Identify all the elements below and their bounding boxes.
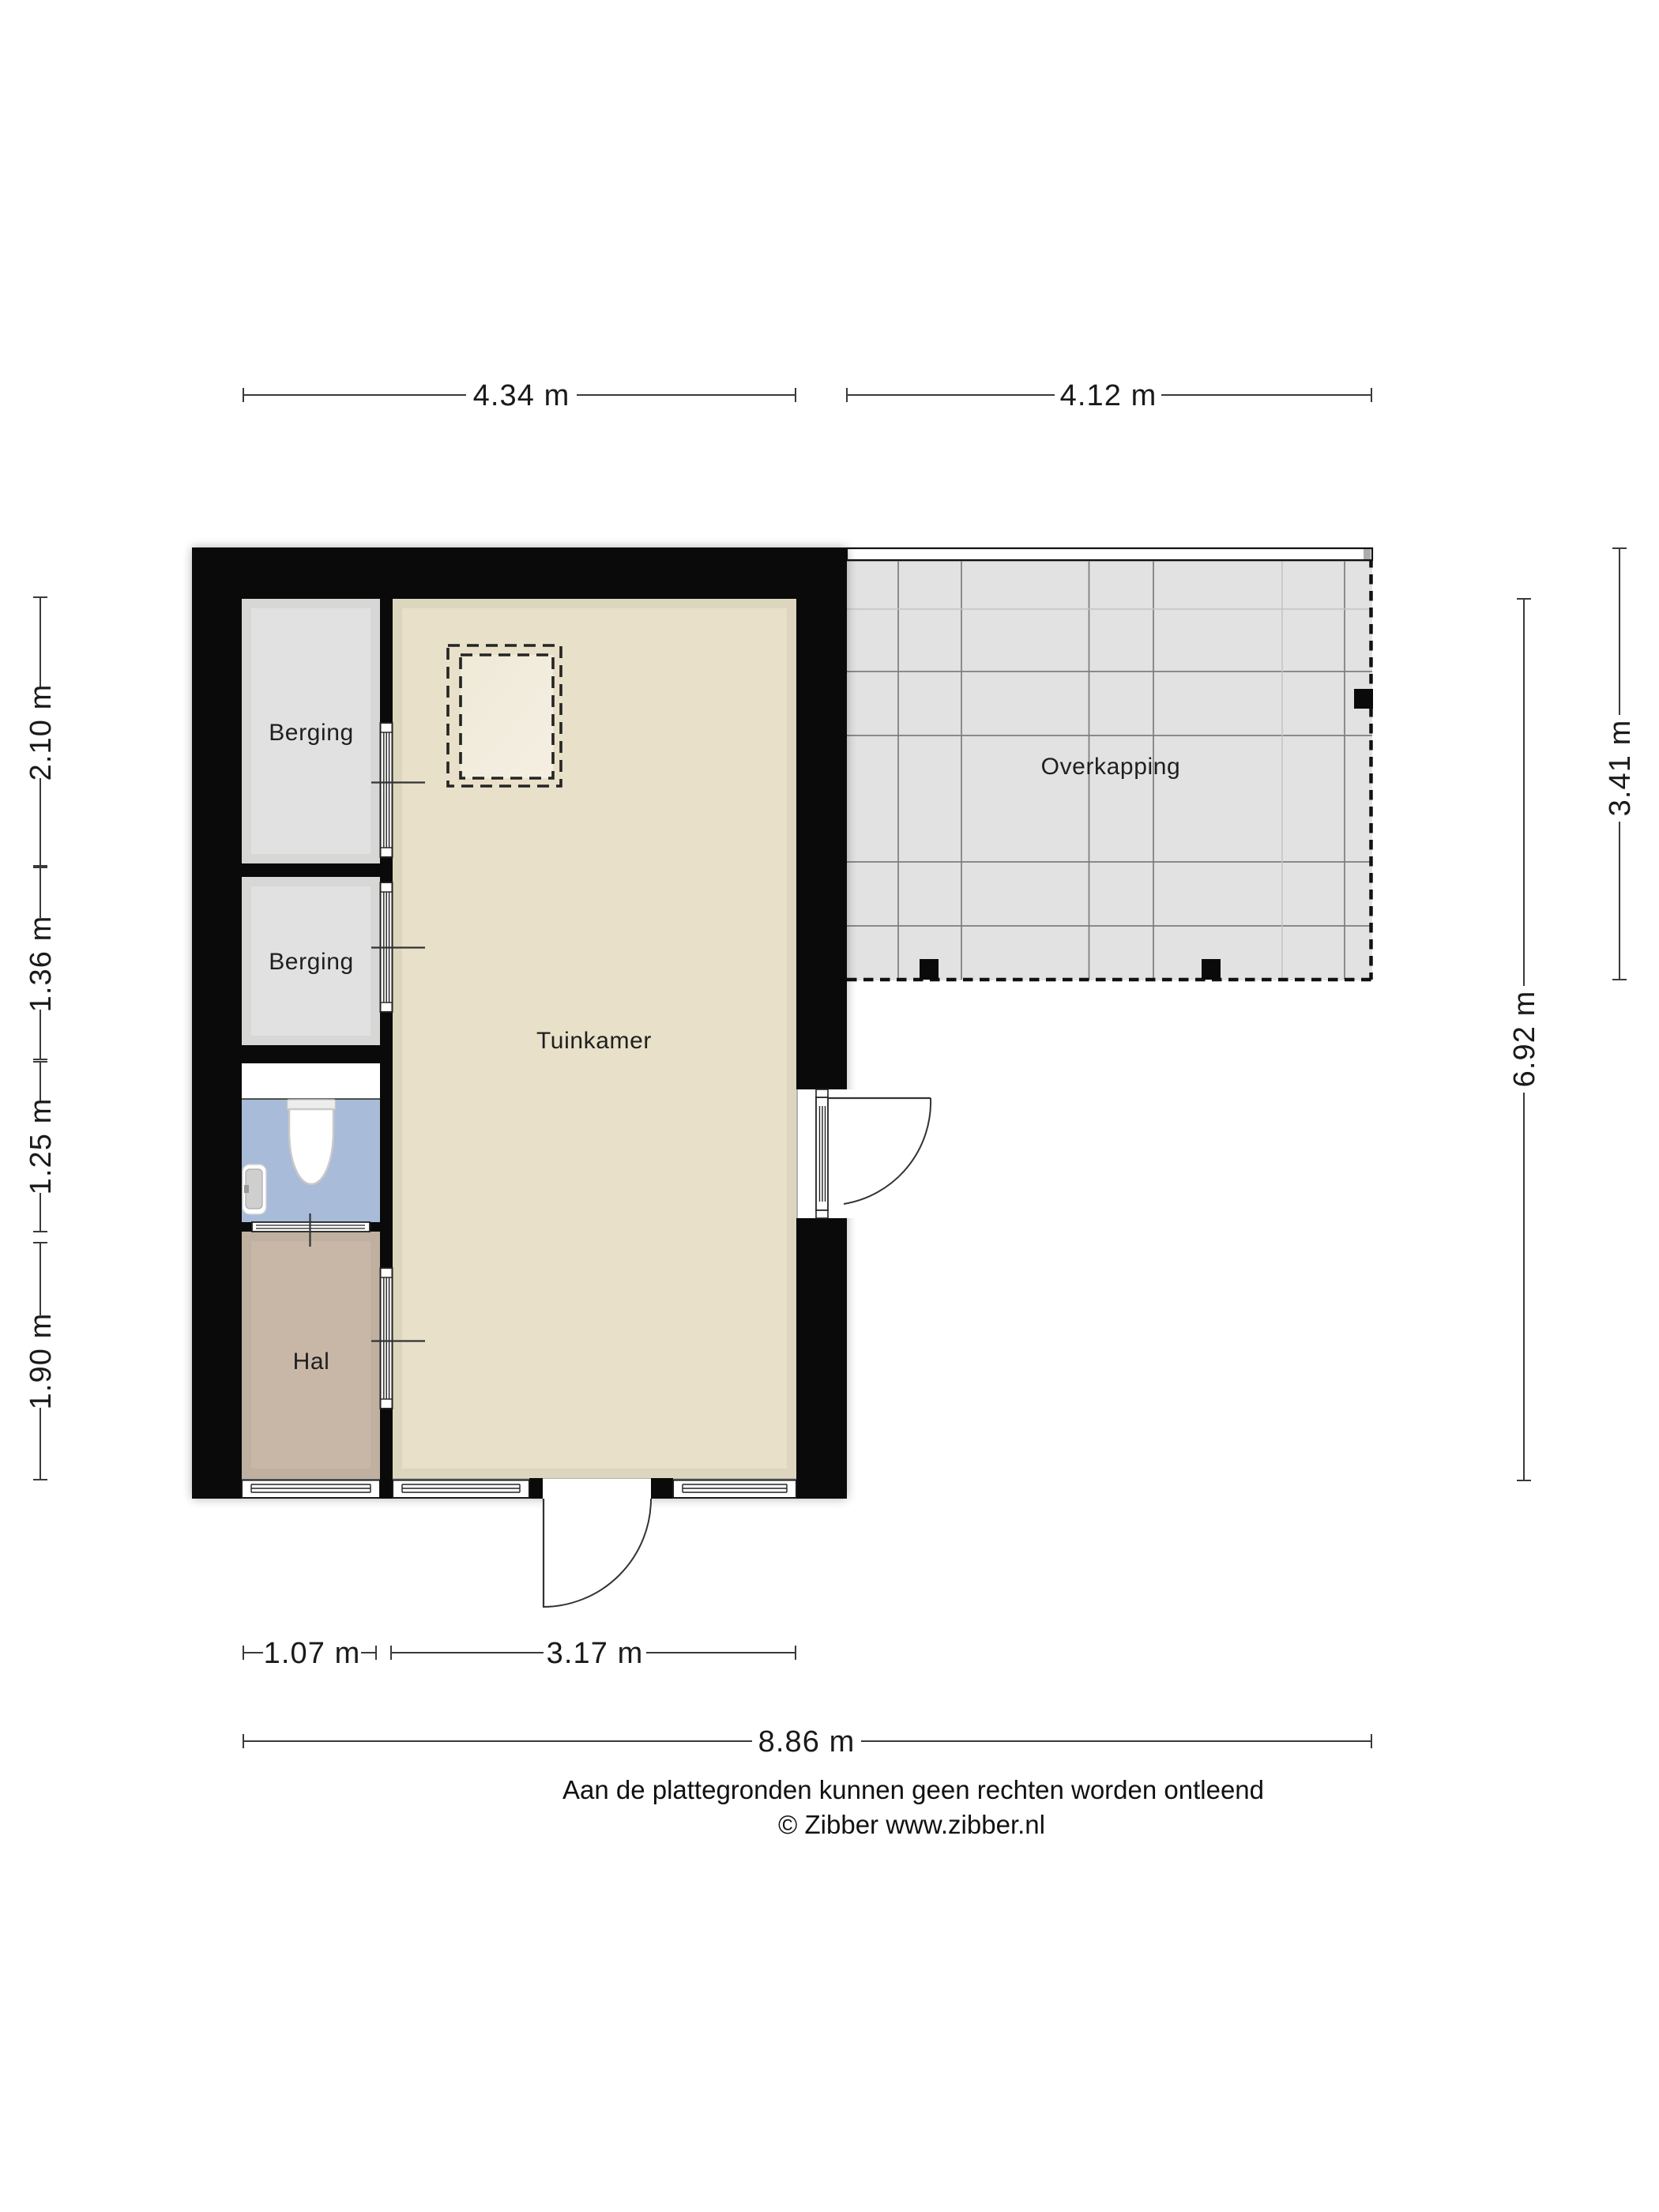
svg-text:Berging: Berging xyxy=(269,949,354,975)
svg-text:4.34 m: 4.34 m xyxy=(473,379,570,412)
svg-text:3.41 m: 3.41 m xyxy=(1604,720,1637,817)
svg-text:Tuinkamer: Tuinkamer xyxy=(536,1028,652,1054)
svg-text:2.10 m: 2.10 m xyxy=(24,684,58,781)
svg-text:© Zibber www.zibber.nl: © Zibber www.zibber.nl xyxy=(778,1810,1045,1839)
svg-text:Berging: Berging xyxy=(269,720,354,746)
svg-text:8.86 m: 8.86 m xyxy=(758,1725,856,1759)
svg-text:1.90 m: 1.90 m xyxy=(24,1313,58,1410)
svg-text:Hal: Hal xyxy=(293,1349,330,1375)
svg-text:1.36 m: 1.36 m xyxy=(24,916,58,1013)
svg-text:4.12 m: 4.12 m xyxy=(1060,379,1157,412)
svg-text:Aan de plattegronden kunnen ge: Aan de plattegronden kunnen geen rechten… xyxy=(562,1775,1264,1804)
svg-text:1.07 m: 1.07 m xyxy=(264,1637,361,1670)
svg-text:6.92 m: 6.92 m xyxy=(1508,991,1541,1088)
svg-text:1.25 m: 1.25 m xyxy=(24,1098,58,1195)
svg-text:Overkapping: Overkapping xyxy=(1041,754,1181,780)
svg-text:3.17 m: 3.17 m xyxy=(547,1637,644,1670)
